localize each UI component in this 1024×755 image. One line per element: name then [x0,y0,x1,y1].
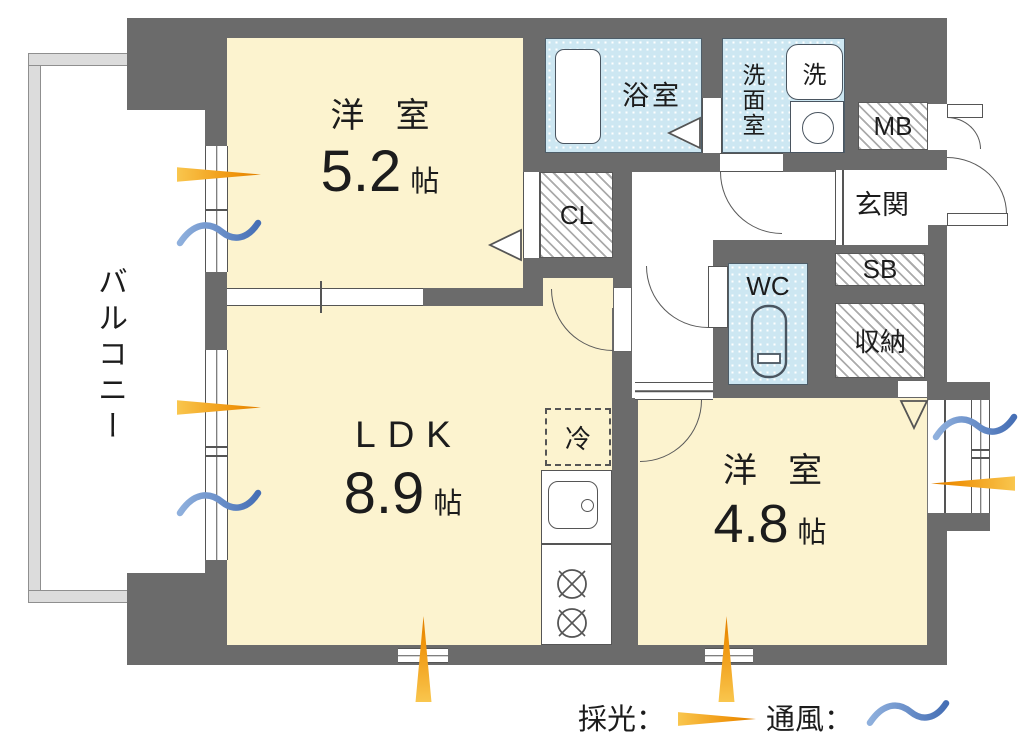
wc-label: WC [728,268,808,304]
entrance-door-leaf [947,213,1008,226]
closet: CL [540,172,613,258]
ventilation-wave-bedroom-top [176,216,262,252]
bedroom-top-size-unit: 帖 [410,158,439,200]
washing-machine-label: 洗 [803,55,827,90]
washroom-label: 洗面室 [734,44,770,156]
closet-label: CL [560,200,593,231]
meter-box: MB [858,102,928,150]
floor-plan: バルコニー MB SB 収納 CL [0,0,1024,755]
storage: 収納 [835,303,925,378]
refrigerator-label: 冷 [565,419,591,456]
entrance-label: 玄関 [840,182,924,222]
sliding-partition [227,288,423,306]
wc-door-opening [708,266,728,328]
window-tick [972,449,989,451]
legend-daylight-label: 採光： [578,696,686,738]
window-tick [972,457,989,459]
storage-label: 収納 [854,322,906,359]
storage-door-triangle [899,399,929,431]
bedroom-right-size-value: 4.8 [713,493,788,555]
toilet-icon [747,303,791,381]
ventilation-wave-ldk [176,486,262,522]
meter-box-door-arc [947,117,981,149]
closet-opening [523,172,540,258]
legend-ventilation-label: 通風： [766,696,874,738]
bedroom-top-size: 5.2 帖 [280,138,480,208]
balcony-railing-left [28,53,41,603]
window-tick [206,446,227,448]
refrigerator-space: 冷 [545,408,611,466]
shoe-box: SB [835,253,925,286]
bedroom-right-name: 洋 室 [675,445,870,489]
closet-door-triangle [487,228,523,262]
legend-daylight-arrow [678,710,756,728]
stove-burners-icon [549,562,595,646]
kitchen-divider-line [541,543,612,545]
ldk-name: LDK [308,412,498,458]
bay-wall-top [927,382,990,400]
kitchen-faucet [581,499,594,512]
bathtub [555,49,601,144]
ventilation-wave-bedroom-right [932,410,1018,446]
bedroom-top-size-value: 5.2 [321,138,402,205]
shoe-box-label: SB [863,254,898,285]
bedroom-right-size-unit: 帖 [798,509,827,551]
meter-box-door-opening [928,104,947,150]
entrance-door-opening [928,170,947,225]
storage-opening [898,380,927,398]
ldk-size-value: 8.9 [344,460,425,527]
balcony-label: バルコニー [86,238,132,473]
wall-corner-bottom-left [127,573,227,665]
bedroom-right-door-opening [635,382,713,400]
entrance-door-arc [947,157,1007,214]
bath-label: 浴室 [600,74,704,112]
legend-ventilation-wave [866,694,950,734]
balcony-railing-top [28,53,128,66]
bath-door-opening [702,98,722,153]
window-tick [206,209,227,211]
window-tick [206,455,227,457]
wall-corner-top-left [127,18,227,110]
ldk-size: 8.9 帖 [303,460,503,530]
sliding-partition-tick [320,281,322,313]
washing-machine: 洗 [786,44,843,100]
washbasin-bowl [802,112,834,144]
meter-box-door-leaf [947,104,983,118]
bay-wall-bottom [927,513,990,531]
bedroom-right-size: 4.8 帖 [670,493,870,561]
ldk-size-unit: 帖 [433,480,462,522]
bedroom-top-name: 洋 室 [285,90,475,134]
balcony-railing-bottom [28,590,128,603]
meter-box-label: MB [874,111,913,142]
bath-door-triangle [666,116,702,150]
ldk-door-opening [613,287,632,352]
